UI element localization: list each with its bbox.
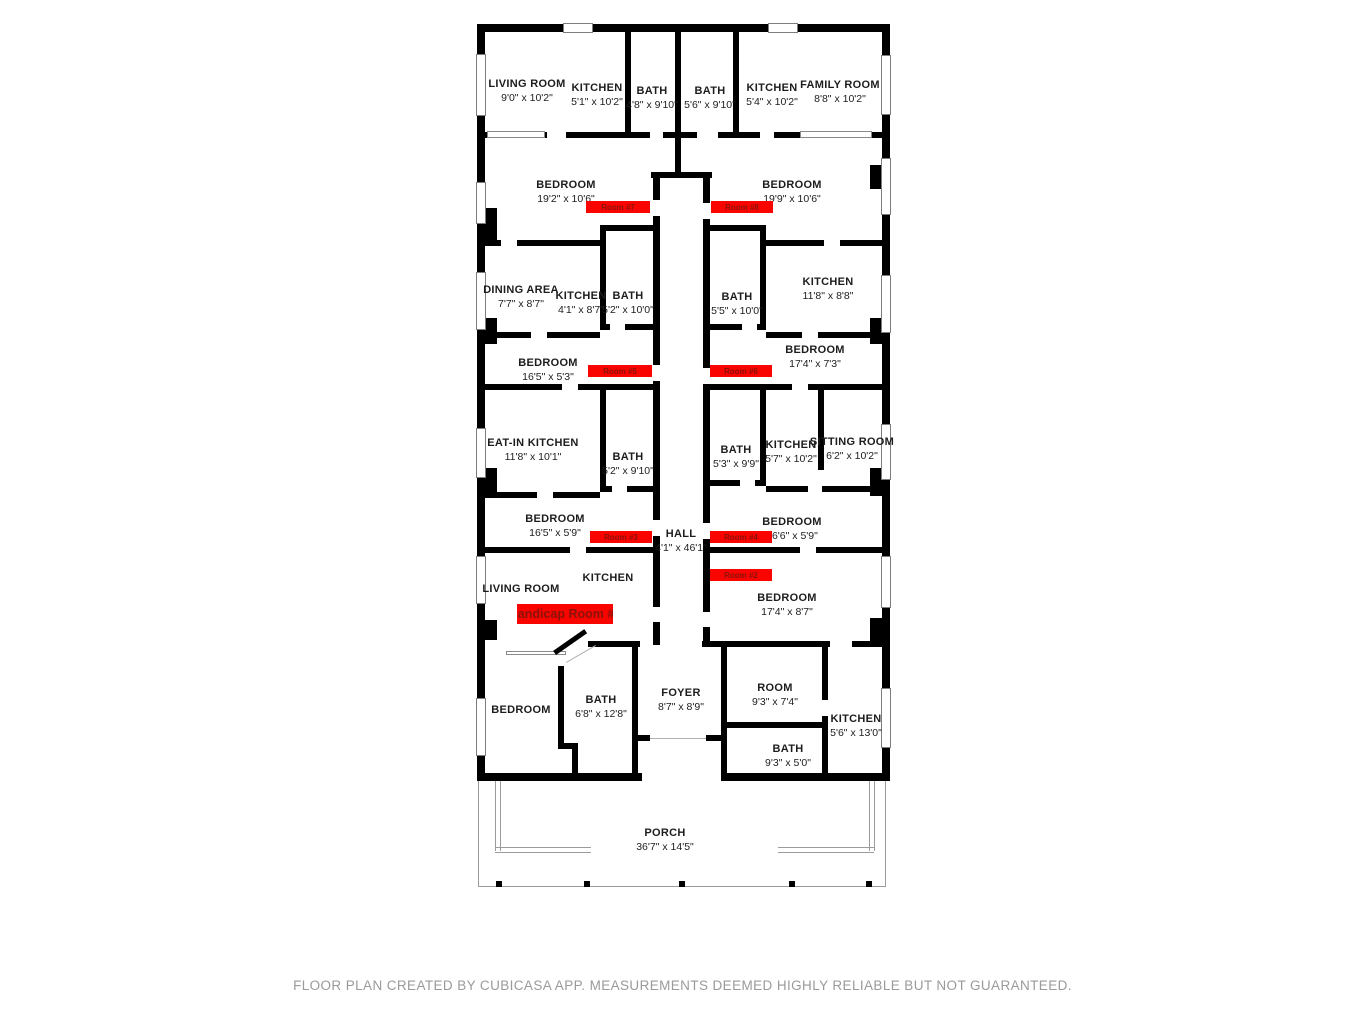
porch-post [584,881,590,887]
wall [632,735,650,741]
wall [760,390,766,486]
wall [517,240,600,246]
wall-outer-right [882,24,890,781]
wall [818,332,882,338]
window [476,182,486,224]
badge-room-5: Room #5 [588,365,652,377]
porch-rail [778,847,874,848]
room-label-kitchen-row3-right: KITCHEN 11'8" x 8'8" [768,276,888,303]
wall-pier [485,208,497,240]
room-label-porch: PORCH 36'7" x 14'5" [605,827,725,854]
window [881,556,891,608]
room-label-bedroom-2: BEDROOM 17'4" x 8'7" [727,592,847,619]
door-gap [653,607,660,622]
badge-handicap-room-1: Handicap Room #1 [517,604,613,624]
kitchen-counter [487,131,545,138]
room-label-bath-row4-left: BATH 5'2" x 9'10" [568,451,688,478]
porch-post [866,881,872,887]
badge-room-4: Room #4 [710,531,772,543]
room-label-bedroom-6: BEDROOM 17'4" x 7'3" [755,344,875,371]
entry-door-line [650,738,706,739]
porch-rail [495,852,591,853]
wall [572,748,578,773]
porch-outline-left [478,781,479,887]
room-label-kitchen-row5: KITCHEN [548,572,668,585]
wall-hall-right [703,178,710,645]
porch-rail [869,781,870,851]
wall [840,240,882,246]
door-gap [612,486,627,492]
wall-diagonal [553,629,587,655]
porch-outline-right [885,781,886,887]
porch-post [496,881,502,887]
wall [566,132,650,138]
badge-room-7: Room #7 [586,201,650,213]
wall [600,324,659,330]
wall [816,547,882,553]
window [476,556,486,604]
wall-hall-stub [675,138,681,176]
room-label-sitting-room: SITTING ROOM 6'2" x 10'2" [792,436,912,463]
wall [822,486,882,492]
door-gap [653,365,660,381]
room-label-bath-row3-left: BATH 5'2" x 10'0" [568,290,688,317]
wall [485,492,537,498]
footer-disclaimer: FLOOR PLAN CREATED BY CUBICASA APP. MEAS… [0,978,1365,993]
wall [553,492,600,498]
wall [766,332,802,338]
door-gap [703,203,710,219]
window [881,158,891,215]
door-swing-line [566,645,596,663]
badge-room-8: Room #8 [711,201,773,213]
badge-room-6: Room #6 [710,365,772,377]
wall [706,735,727,741]
wall [710,384,792,390]
wall [718,132,760,138]
porch-rail [874,781,875,851]
wall [766,240,824,246]
porch-rail [500,781,501,851]
porch-rail [495,847,591,848]
wall [547,332,600,338]
wall [600,225,659,231]
door-gap [653,200,660,216]
badge-room-3: Room #3 [590,531,652,543]
door-gap [703,368,710,384]
wall [852,641,882,647]
porch-post [679,881,685,887]
wall-outer-left [477,24,485,781]
wall [600,486,659,492]
wall-outer-top [477,24,890,32]
floor-plan-page: LIVING ROOM 9'0" x 10'2" KITCHEN 5'1" x … [0,0,1365,1024]
wall [704,480,766,486]
wall [485,332,531,338]
window [768,23,798,33]
room-label-room: ROOM 9'3" x 7'4" [715,682,835,709]
badge-room-2: Room #2 [710,569,772,581]
wall-outer-bottom-left [477,773,642,781]
wall [578,384,653,390]
wall-outer-bottom-right [721,773,890,781]
room-label-kitchen-bottom-right: KITCHEN 5'6" x 13'0" [796,713,916,740]
kitchen-counter [800,131,872,138]
door-gap [742,324,757,330]
porch-rail [495,781,496,851]
room-label-family-room: FAMILY ROOM 8'8" x 10'2" [780,79,900,106]
porch-rail [778,852,874,853]
door-gap [610,324,625,330]
wall [485,384,562,390]
wall [675,32,681,136]
door-gap [740,480,755,486]
wall [485,240,501,246]
wall [485,547,570,553]
wall [766,486,808,492]
door-gap [703,612,710,627]
room-label-bath-bottom-right: BATH 9'3" x 5'0" [728,743,848,770]
porch-post [789,881,795,887]
wall [704,225,766,231]
wall-pier [485,318,497,344]
wall-pier [485,620,497,640]
window [563,23,593,33]
